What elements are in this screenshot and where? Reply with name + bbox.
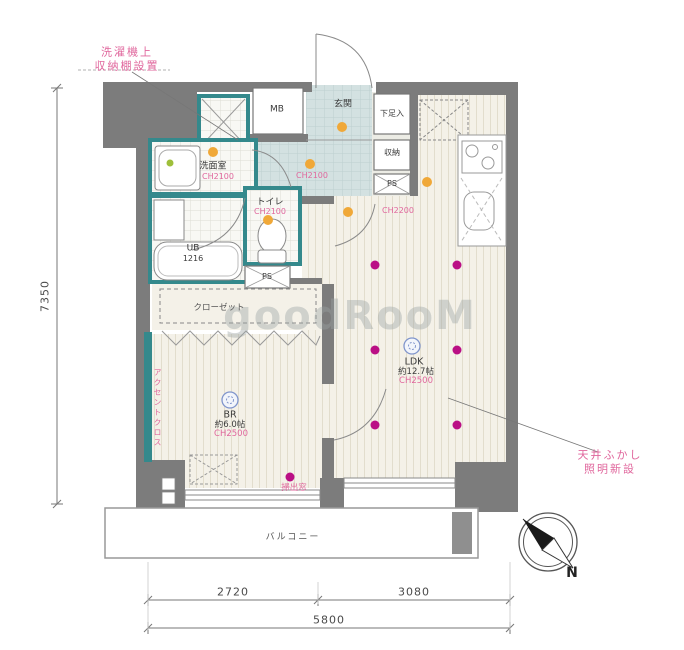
compass-icon [519,513,577,571]
storage-label: 収納 [384,149,400,157]
washroom-ch-label: CH2100 [202,173,234,181]
washer-note-line2: 収納棚設置 [95,61,160,72]
bedroom-label: BR [223,410,236,420]
accent-wall-label: アクセントクロス [153,368,161,448]
dimension-width-left: 2720 [217,587,249,598]
shoe-cabinet-label: 下足入 [380,110,404,118]
ldk-label: LDK [405,357,424,367]
window-note-label: 掃出窓 [281,484,307,493]
compass-north-label: N [566,566,578,580]
balcony-label: バルコニー [266,534,321,543]
vanity-icon [154,200,184,240]
meter-box-label: MB [270,106,284,115]
entrance-label: 玄関 [334,101,352,110]
toilet-icon [258,219,286,263]
dimension-width-total: 5800 [313,615,345,626]
kitchen-ch-label: CH2200 [382,207,414,215]
washing-machine-pan-icon [155,146,200,190]
ceiling-note-line1: 天井ふかし [578,450,643,461]
closet-label: クローゼット [193,304,244,313]
pipe-space-lower-label: PS [262,273,272,281]
dimension-width-right: 3080 [398,587,430,598]
dimension-height-total: 7350 [40,280,51,312]
bath-size-label: 1216 [183,255,203,263]
pipe-space-upper-label: PS [387,180,397,188]
kitchen-counter-icon [458,135,506,246]
ldk-ch-label: CH2500 [399,377,433,386]
bedroom-ch-label: CH2500 [214,430,248,439]
floorplan-page: goodRooM 洗濯機上 収納棚設置 洗面室 CH2100 トイレ CH210… [0,0,684,650]
bath-label: UB [187,245,200,254]
washroom-label: 洗面室 [199,163,226,172]
ceiling-note-line2: 照明新設 [584,464,636,475]
hall-ch-label: CH2100 [296,172,328,180]
accent-wall-strip [144,332,152,462]
toilet-ch-label: CH2100 [254,208,286,216]
watermark: goodRooM [223,293,477,339]
washer-note-line1: 洗濯機上 [101,47,153,58]
